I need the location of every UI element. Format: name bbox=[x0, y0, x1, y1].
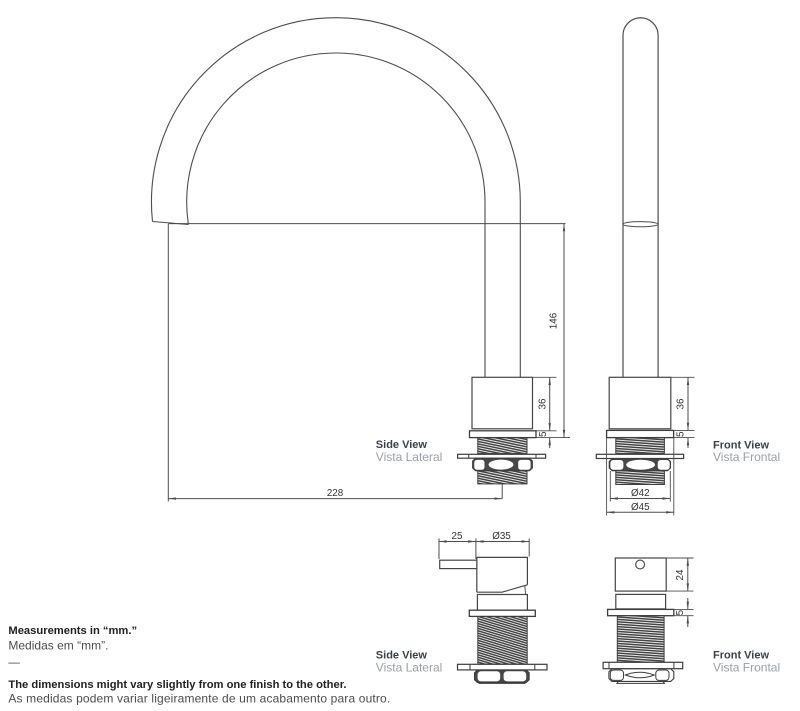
svg-text:Side View: Side View bbox=[376, 439, 428, 451]
svg-text:Vista Lateral: Vista Lateral bbox=[376, 661, 443, 675]
svg-text:Vista Frontal: Vista Frontal bbox=[713, 661, 780, 675]
svg-text:Measurements in “mm.”: Measurements in “mm.” bbox=[8, 625, 137, 637]
svg-text:36: 36 bbox=[538, 398, 549, 409]
svg-text:—: — bbox=[8, 657, 20, 669]
svg-text:25: 25 bbox=[452, 531, 463, 542]
svg-text:Ø45: Ø45 bbox=[631, 502, 650, 513]
svg-text:Medidas em “mm”.: Medidas em “mm”. bbox=[8, 639, 108, 653]
svg-text:5: 5 bbox=[676, 431, 687, 437]
svg-text:As medidas podem variar ligeir: As medidas podem variar ligeiramente de … bbox=[8, 692, 390, 706]
svg-text:5: 5 bbox=[538, 431, 549, 437]
svg-text:Ø35: Ø35 bbox=[492, 531, 511, 542]
svg-text:Vista Lateral: Vista Lateral bbox=[376, 450, 443, 464]
svg-text:24: 24 bbox=[675, 569, 686, 580]
svg-text:5: 5 bbox=[675, 609, 686, 615]
svg-text:36: 36 bbox=[676, 398, 687, 409]
svg-text:The dimensions might vary slig: The dimensions might vary slightly from … bbox=[8, 679, 346, 691]
svg-text:Ø42: Ø42 bbox=[631, 488, 650, 499]
svg-text:Vista Frontal: Vista Frontal bbox=[713, 450, 780, 464]
svg-text:228: 228 bbox=[327, 488, 344, 499]
svg-text:146: 146 bbox=[549, 312, 560, 329]
